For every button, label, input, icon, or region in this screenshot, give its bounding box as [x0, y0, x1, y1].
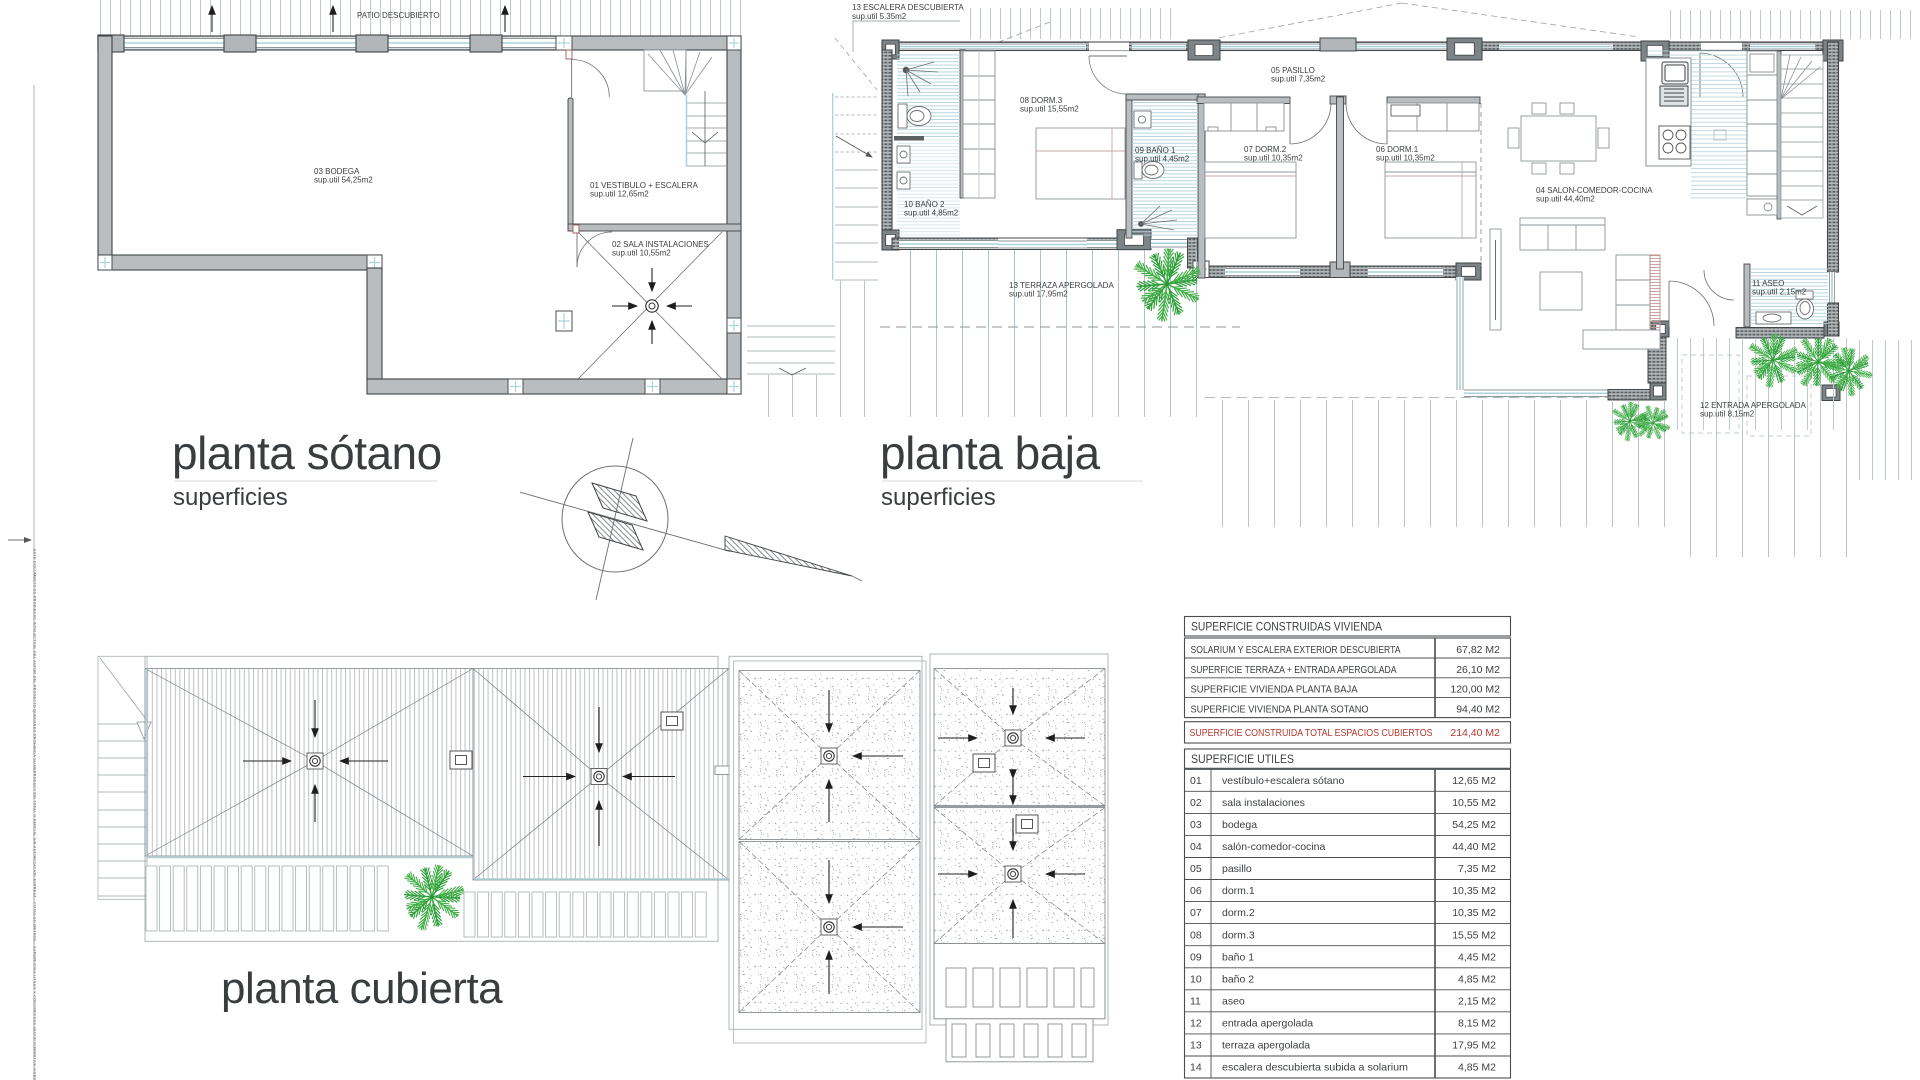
svg-text:120,00 M2: 120,00 M2 [1450, 684, 1500, 696]
svg-text:SUPERFICIE CONSTRUIDA TOTAL ES: SUPERFICIE CONSTRUIDA TOTAL ESPACIOS CUB… [1190, 727, 1433, 739]
svg-text:sup.util 12,65m2: sup.util 12,65m2 [590, 190, 649, 199]
svg-text:vestíbulo+escalera sótano: vestíbulo+escalera sótano [1222, 775, 1344, 787]
svg-text:214,40 M2: 214,40 M2 [1450, 727, 1500, 739]
svg-text:dorm.2: dorm.2 [1222, 907, 1255, 919]
svg-text:planta cubierta: planta cubierta [221, 964, 503, 1013]
svg-text:04: 04 [1190, 841, 1202, 853]
svg-text:superficies: superficies [173, 484, 288, 511]
svg-text:terraza apergolada: terraza apergolada [1222, 1040, 1310, 1052]
svg-text:PATIO DESCUBIERTO: PATIO DESCUBIERTO [357, 11, 440, 20]
svg-text:pasillo: pasillo [1222, 863, 1252, 875]
svg-text:sup.util 54,25m2: sup.util 54,25m2 [314, 176, 373, 185]
svg-text:sup.util 17,95m2: sup.util 17,95m2 [1009, 290, 1068, 299]
svg-text:ESTE DOCUMENTO ES PROPIEDAD IN: ESTE DOCUMENTO ES PROPIEDAD INTELECTUAL … [33, 549, 37, 1080]
svg-text:sup.util 2,15m2: sup.util 2,15m2 [1752, 288, 1807, 297]
svg-text:planta baja: planta baja [880, 427, 1100, 479]
svg-text:4,85 M2: 4,85 M2 [1458, 973, 1496, 985]
svg-text:67,82 M2: 67,82 M2 [1456, 644, 1500, 656]
svg-text:sup.util 8,15m2: sup.util 8,15m2 [1700, 410, 1755, 419]
svg-text:sup.util 15,55m2: sup.util 15,55m2 [1020, 105, 1079, 114]
svg-text:17,95 M2: 17,95 M2 [1452, 1040, 1496, 1052]
svg-text:SUPERFICIE VIVIENDA PLANTA BAJ: SUPERFICIE VIVIENDA PLANTA BAJA [1191, 684, 1358, 696]
svg-text:8,15 M2: 8,15 M2 [1458, 1017, 1496, 1029]
svg-text:baño 1: baño 1 [1222, 951, 1254, 963]
svg-text:05: 05 [1190, 863, 1202, 875]
svg-text:sup.util 10,35m2: sup.util 10,35m2 [1244, 154, 1303, 163]
svg-text:bodega: bodega [1222, 819, 1257, 831]
svg-text:sala instalaciones: sala instalaciones [1222, 797, 1305, 809]
svg-text:baño 2: baño 2 [1222, 973, 1254, 985]
svg-text:2,15 M2: 2,15 M2 [1458, 995, 1496, 1007]
svg-text:10: 10 [1190, 973, 1202, 985]
svg-text:SUPERFICIE UTILES: SUPERFICIE UTILES [1191, 754, 1294, 766]
svg-text:aseo: aseo [1222, 995, 1245, 1007]
svg-text:13 ESCALERA DESCUBIERTA: 13 ESCALERA DESCUBIERTA [852, 3, 964, 12]
svg-text:12,65 M2: 12,65 M2 [1452, 775, 1496, 787]
svg-text:sup.util 4,85m2: sup.util 4,85m2 [904, 209, 959, 218]
svg-text:sup.util 10,35m2: sup.util 10,35m2 [1376, 154, 1435, 163]
svg-text:SUPERFICIE TERRAZA + ENTRADA A: SUPERFICIE TERRAZA + ENTRADA APERGOLADA [1191, 664, 1397, 676]
svg-text:4,85 M2: 4,85 M2 [1458, 1062, 1496, 1074]
svg-text:7,35 M2: 7,35 M2 [1458, 863, 1496, 875]
svg-text:14: 14 [1190, 1062, 1202, 1074]
svg-text:sup.util 44,40m2: sup.util 44,40m2 [1536, 195, 1595, 204]
svg-text:4,45 M2: 4,45 M2 [1458, 951, 1496, 963]
svg-text:SUPERFICIE CONSTRUIDAS VIVIEND: SUPERFICIE CONSTRUIDAS VIVIENDA [1191, 622, 1382, 634]
svg-text:planta sótano: planta sótano [172, 427, 442, 479]
svg-text:13: 13 [1190, 1040, 1202, 1052]
svg-text:superficies: superficies [881, 484, 996, 511]
svg-text:entrada apergolada: entrada apergolada [1222, 1017, 1313, 1029]
svg-text:sup.util 5.35m2: sup.util 5.35m2 [852, 12, 907, 21]
svg-text:09: 09 [1190, 951, 1202, 963]
svg-text:dorm.3: dorm.3 [1222, 929, 1255, 941]
svg-text:06: 06 [1190, 885, 1202, 897]
svg-text:26,10 M2: 26,10 M2 [1456, 664, 1500, 676]
svg-text:10,35 M2: 10,35 M2 [1452, 885, 1496, 897]
svg-text:44,40 M2: 44,40 M2 [1452, 841, 1496, 853]
svg-text:escalera descubierta subida a: escalera descubierta subida a solarium [1222, 1062, 1408, 1074]
svg-text:dorm.1: dorm.1 [1222, 885, 1255, 897]
svg-text:11: 11 [1190, 995, 1201, 1007]
svg-text:sup.util 4,45m2: sup.util 4,45m2 [1135, 155, 1190, 164]
svg-text:10,55 M2: 10,55 M2 [1452, 797, 1496, 809]
svg-text:03: 03 [1190, 819, 1202, 831]
svg-text:salón-comedor-cocina: salón-comedor-cocina [1222, 841, 1325, 853]
svg-text:02: 02 [1190, 797, 1202, 809]
svg-text:SUPERFICIE VIVIENDA PLANTA SOT: SUPERFICIE VIVIENDA PLANTA SOTANO [1191, 703, 1369, 715]
svg-text:01: 01 [1190, 775, 1202, 787]
svg-text:07: 07 [1190, 907, 1202, 919]
svg-text:94,40 M2: 94,40 M2 [1456, 703, 1500, 715]
svg-text:sup.util 7,35m2: sup.util 7,35m2 [1271, 75, 1326, 84]
svg-text:15,55 M2: 15,55 M2 [1452, 929, 1496, 941]
svg-text:SOLARIUM Y ESCALERA EXTERIOR D: SOLARIUM Y ESCALERA EXTERIOR DESCUBIERTA [1191, 644, 1401, 656]
svg-text:sup.util 10,55m2: sup.util 10,55m2 [612, 249, 671, 258]
svg-text:54,25 M2: 54,25 M2 [1452, 819, 1496, 831]
svg-text:12: 12 [1190, 1017, 1202, 1029]
svg-text:10,35 M2: 10,35 M2 [1452, 907, 1496, 919]
svg-text:08: 08 [1190, 929, 1202, 941]
